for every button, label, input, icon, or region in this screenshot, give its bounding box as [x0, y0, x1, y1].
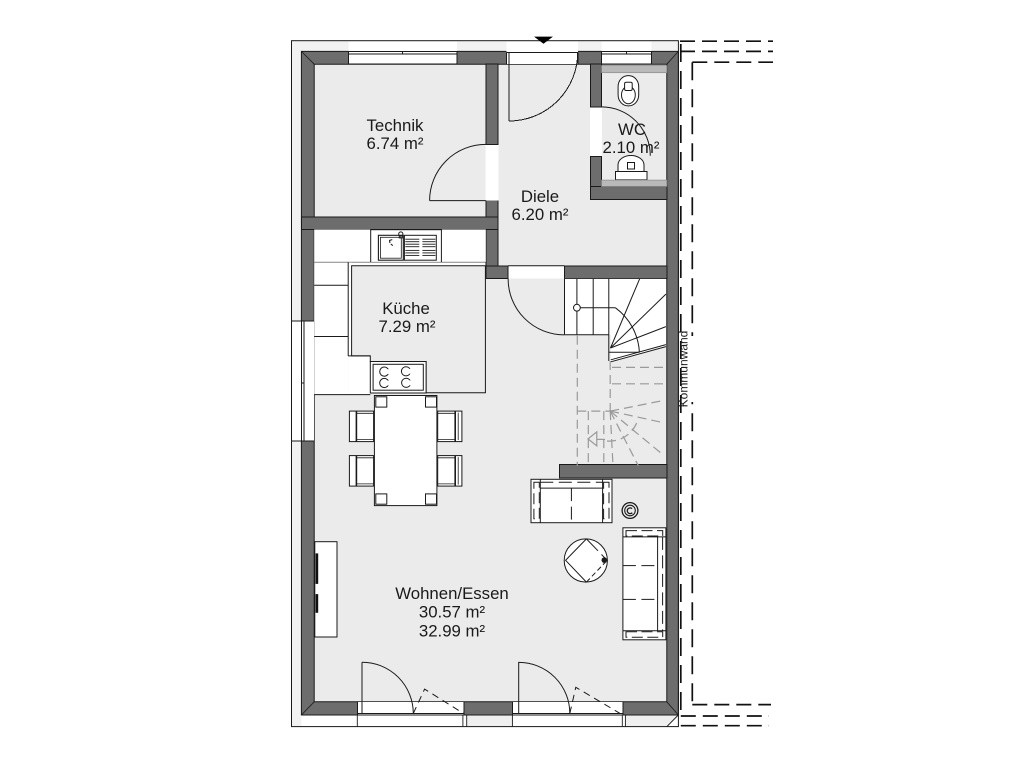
svg-text:2.10 m²: 2.10 m² — [603, 138, 660, 157]
svg-text:32.99 m²: 32.99 m² — [419, 622, 486, 641]
svg-text:WC: WC — [618, 120, 646, 139]
svg-text:Wohnen/Essen: Wohnen/Essen — [395, 584, 509, 603]
svg-text:6.20 m²: 6.20 m² — [512, 205, 569, 224]
svg-text:Küche: Küche — [382, 299, 430, 318]
svg-text:6.74 m²: 6.74 m² — [367, 134, 424, 153]
svg-text:7.29 m²: 7.29 m² — [379, 317, 436, 336]
svg-text:30.57 m²: 30.57 m² — [419, 603, 486, 622]
svg-text:Technik: Technik — [367, 116, 425, 135]
svg-text:Diele: Diele — [521, 187, 559, 206]
